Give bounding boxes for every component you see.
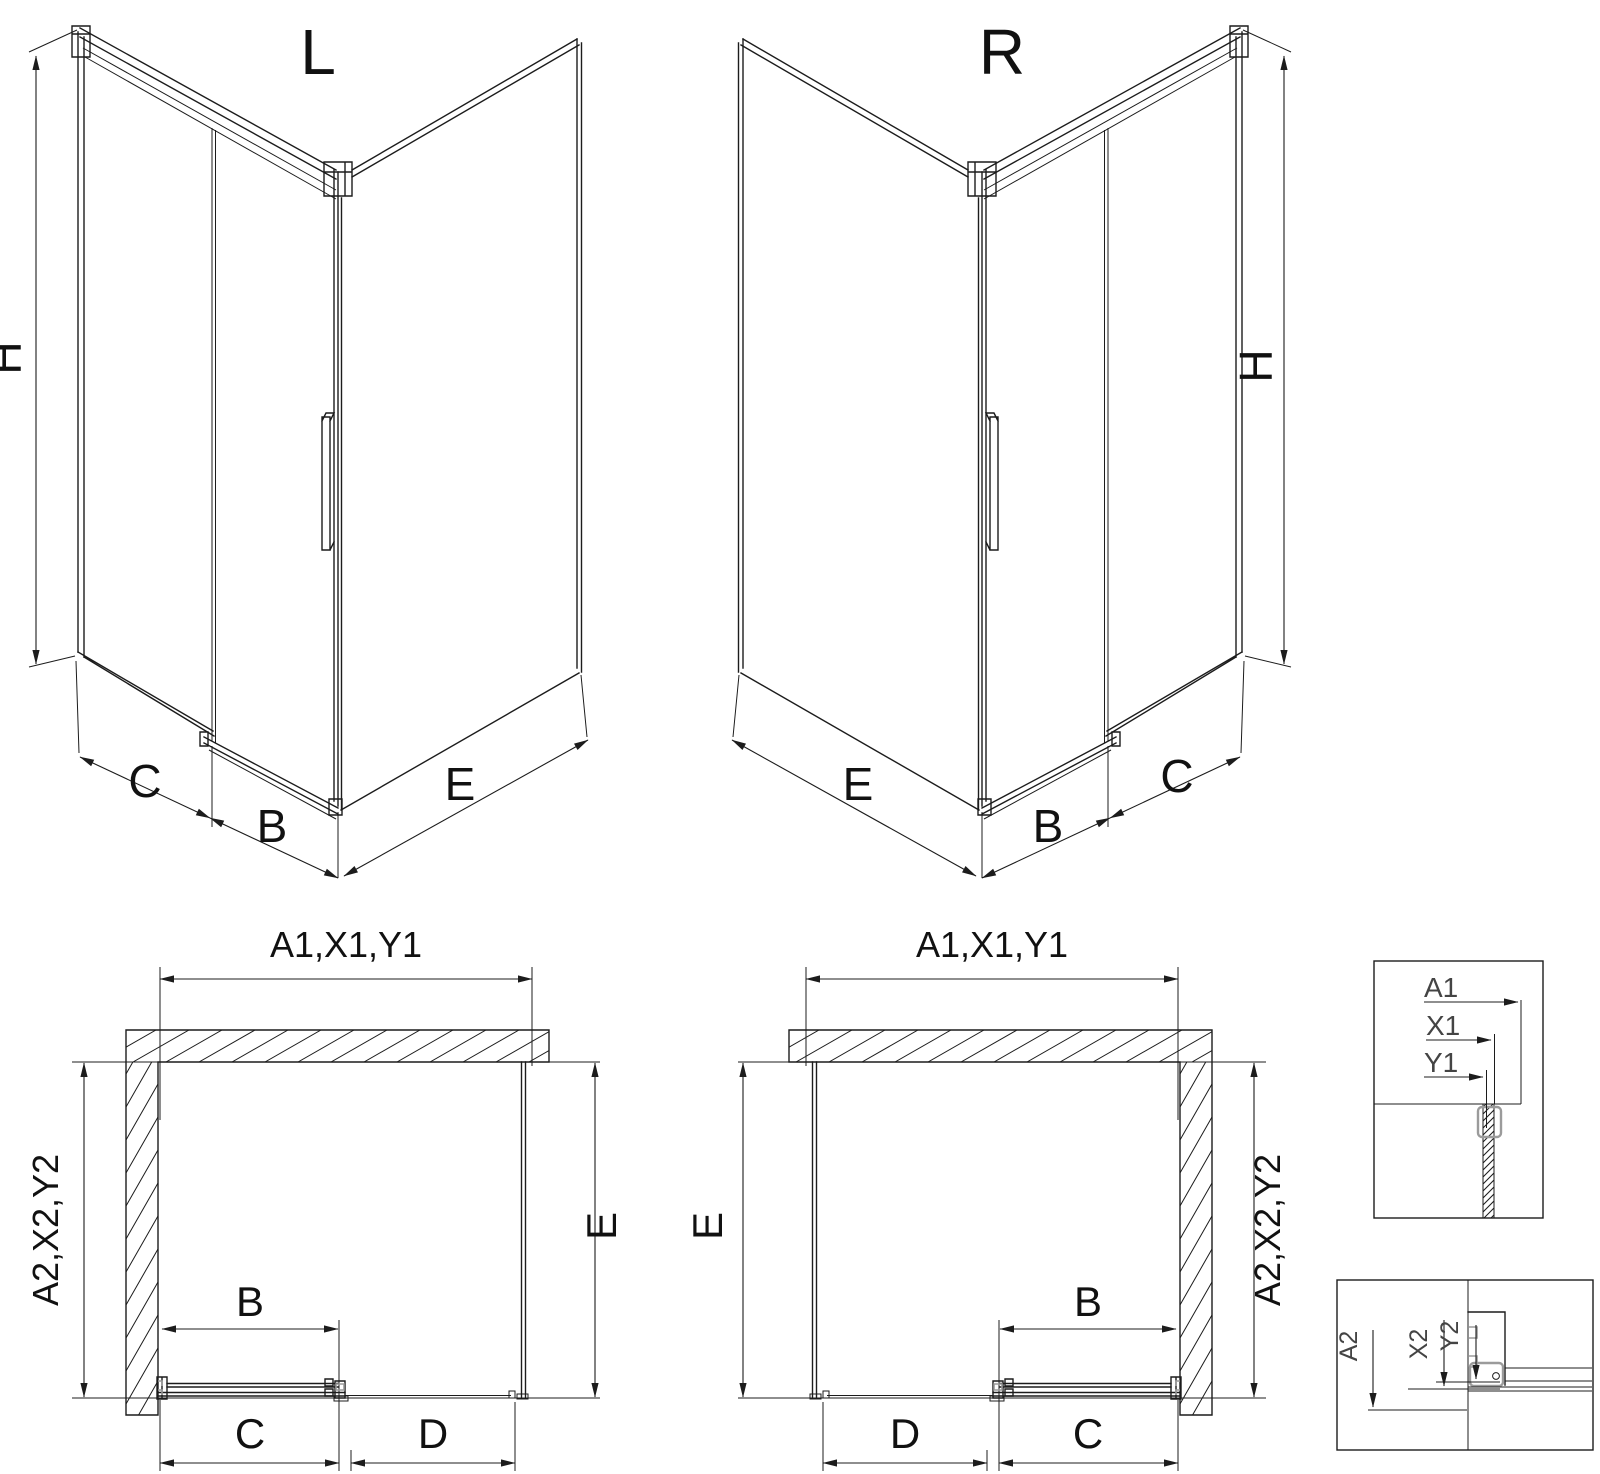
detail-dim-x2: X2 [1405, 1329, 1433, 1360]
dim-label-door-left: B [257, 800, 288, 852]
plan-view-left: A1,X1,Y1 A2,X2,Y2 E B C D [25, 924, 625, 1471]
plan-top-dim-right: A1,X1,Y1 [916, 924, 1068, 965]
wall-hatch-top-right [763, 1030, 1248, 1062]
variant-title-right: R [979, 16, 1025, 88]
detail-dim-a1: A1 [1424, 972, 1458, 1003]
plan-opening-dim-right: C [1073, 1410, 1103, 1457]
wall-hatch-side-right [1180, 1018, 1212, 1437]
dim-label-fixed-left: C [128, 755, 161, 807]
wall-outline-left [126, 1030, 549, 1415]
plan-top-dim-left: A1,X1,Y1 [270, 924, 422, 965]
detail-dim-y1: Y1 [1424, 1047, 1458, 1078]
shower-enclosure-technical-drawing: L H C B E R H C B E A1,X1,Y1 A2,X2,Y2 E … [0, 0, 1600, 1474]
plan-fixedglass-dim-right: D [890, 1410, 920, 1457]
screw-icon [1493, 1373, 1500, 1380]
detail-top-frame [1374, 961, 1543, 1218]
wall-hatch-side-left [126, 1018, 158, 1437]
wall-outline-right [789, 1030, 1212, 1415]
dim-label-side-right: E [843, 758, 874, 810]
plan-door-dim-left: B [236, 1278, 264, 1325]
plan-opening-dim-left: C [235, 1410, 265, 1457]
detail-dim-y2: Y2 [1436, 1321, 1464, 1352]
dim-label-height-right: H [1230, 349, 1282, 382]
wall-hatch-top-left [100, 1030, 585, 1062]
detail-top-section: A1 X1 Y1 [1374, 961, 1543, 1229]
plan-sidepanel-dim-left: E [578, 1212, 625, 1240]
plan-side-dim-left: A2,X2,Y2 [25, 1154, 66, 1306]
plan-fixedglass-dim-left: D [418, 1410, 448, 1457]
detail-dim-x1: X1 [1426, 1010, 1460, 1041]
plan-door-dim-right: B [1074, 1278, 1102, 1325]
plan-view-right: A1,X1,Y1 A2,X2,Y2 E B C D [684, 924, 1288, 1471]
iso-view-right: R H C B E [732, 16, 1291, 878]
variant-title-left: L [300, 16, 336, 88]
dim-label-fixed-right: C [1160, 750, 1193, 802]
detail-bottom-section: A2 X2 Y2 [1335, 1280, 1593, 1450]
iso-view-left: L H C B E [0, 16, 588, 878]
plan-sidepanel-dim-right: E [684, 1212, 731, 1240]
detail-bottom-frame [1337, 1280, 1593, 1450]
dim-label-door-right: B [1033, 800, 1064, 852]
dim-label-height-left: H [0, 341, 31, 374]
plan-side-dim-right: A2,X2,Y2 [1247, 1154, 1288, 1306]
dim-label-side-left: E [445, 758, 476, 810]
detail-dim-a2: A2 [1335, 1331, 1363, 1362]
